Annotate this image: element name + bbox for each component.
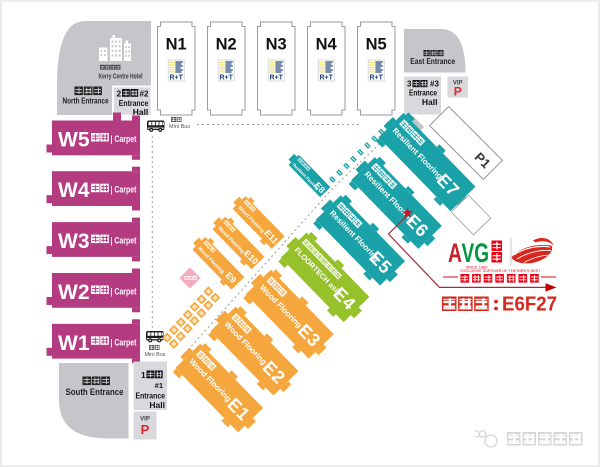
- svg-text:South Entrance: South Entrance: [66, 387, 124, 397]
- svg-text:R+T: R+T: [269, 75, 283, 82]
- svg-text:W2: W2: [58, 281, 90, 304]
- svg-text:| Carpet: | Carpet: [111, 337, 137, 347]
- svg-text:Mini Bus: Mini Bus: [144, 352, 165, 358]
- svg-text:#1: #1: [155, 381, 163, 390]
- svg-text:1: 1: [141, 370, 146, 380]
- svg-text:W1: W1: [58, 332, 90, 355]
- svg-text:R+T: R+T: [319, 75, 333, 82]
- svg-text:P: P: [141, 422, 150, 437]
- svg-text:| Carpet: | Carpet: [111, 185, 137, 195]
- svg-text:| Carpet: | Carpet: [111, 236, 137, 246]
- svg-text:Kerry Centre Hotel: Kerry Centre Hotel: [99, 74, 143, 81]
- svg-text:Hall: Hall: [149, 400, 165, 410]
- svg-text:Hall: Hall: [422, 97, 438, 107]
- svg-text:N2: N2: [216, 36, 237, 54]
- svg-text:EXCLUSIVE SUPPLIER OF THE: EXCLUSIVE SUPPLIER OF THE BIRD'S NEST: [461, 269, 541, 273]
- svg-text:R+T: R+T: [369, 75, 383, 82]
- svg-text:R+T: R+T: [169, 75, 183, 82]
- svg-text:Entrance: Entrance: [136, 391, 166, 401]
- svg-text:R+T: R+T: [219, 75, 233, 82]
- svg-text:W4: W4: [58, 179, 90, 202]
- svg-text:N5: N5: [366, 36, 387, 54]
- svg-text:| Carpet: | Carpet: [111, 287, 137, 297]
- svg-text:P: P: [454, 85, 462, 99]
- svg-text:| Carpet: | Carpet: [111, 134, 137, 144]
- svg-text:N4: N4: [316, 36, 338, 54]
- svg-text:Mini Bus: Mini Bus: [169, 124, 190, 130]
- svg-text:VG: VG: [462, 238, 490, 268]
- svg-text:N1: N1: [166, 36, 187, 54]
- svg-text:W3: W3: [58, 230, 90, 253]
- svg-text:Entrance: Entrance: [409, 88, 437, 98]
- svg-text:A: A: [448, 238, 462, 268]
- svg-text:N3: N3: [266, 36, 287, 54]
- svg-text:East Entrance: East Entrance: [410, 56, 455, 66]
- svg-text:2: 2: [117, 89, 122, 99]
- svg-text:W5: W5: [58, 129, 90, 152]
- svg-text:E6F27: E6F27: [502, 294, 557, 316]
- svg-text:North Entrance: North Entrance: [63, 96, 109, 106]
